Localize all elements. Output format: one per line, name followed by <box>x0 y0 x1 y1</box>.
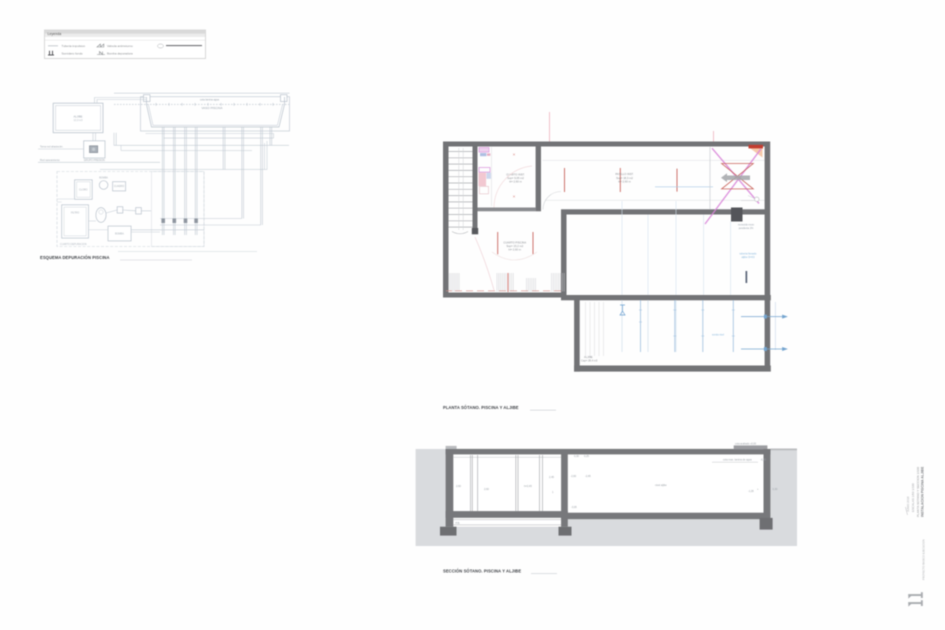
svg-text:FILTRO: FILTRO <box>71 211 79 214</box>
svg-text:0,30: 0,30 <box>773 488 778 491</box>
svg-text:PLANTA SÓTANO. PISCINA Y ALJIB: PLANTA SÓTANO. PISCINA Y ALJIBE <box>443 405 519 410</box>
svg-text:2,60: 2,60 <box>456 485 461 488</box>
svg-text:Tuberia impulsion: Tuberia impulsion <box>62 44 86 48</box>
svg-text:Red saneamiento: Red saneamiento <box>40 159 60 162</box>
svg-text:VASO PISCINA: VASO PISCINA <box>202 106 223 110</box>
svg-text:ESCALAS 1/50 1/100: ESCALAS 1/50 1/100 <box>911 483 915 512</box>
svg-text:ALJIBE: ALJIBE <box>584 355 593 359</box>
svg-text:ESQUEMA DEPURACIÓN PISCINA: ESQUEMA DEPURACIÓN PISCINA <box>40 255 110 260</box>
svg-text:h=2,45: h=2,45 <box>524 485 532 488</box>
svg-text:Sup= 18,3 m2: Sup= 18,3 m2 <box>616 176 633 180</box>
svg-text:H= 2,60 m: H= 2,60 m <box>509 248 522 252</box>
svg-text:SECCIÓN SÓTANO. PISCINA Y ALJI: SECCIÓN SÓTANO. PISCINA Y ALJIBE <box>443 569 521 574</box>
svg-text:2,60: 2,60 <box>484 488 489 491</box>
svg-text:12,0 m3: 12,0 m3 <box>73 119 83 122</box>
svg-text:sonda nivel: sonda nivel <box>712 334 725 337</box>
svg-text:nivel aljibe: nivel aljibe <box>655 484 667 487</box>
svg-text:H= 2,60 m: H= 2,60 m <box>618 179 631 183</box>
svg-text:Cap= 28,4 m3: Cap= 28,4 m3 <box>581 359 598 363</box>
svg-text:GRUPO PRESION: GRUPO PRESION <box>84 159 105 162</box>
svg-text:Sup= 9,05 m2: Sup= 9,05 m2 <box>507 176 524 180</box>
svg-text:-2,45: -2,45 <box>585 475 591 478</box>
svg-text:Bomba depuradora: Bomba depuradora <box>107 52 133 56</box>
svg-text:Valvula antirretorno: Valvula antirretorno <box>107 44 133 48</box>
svg-text:cota lamina agua: cota lamina agua <box>200 99 220 102</box>
svg-text:H= 2,60 m: H= 2,60 m <box>509 180 522 184</box>
svg-text:cota acabado +0,00: cota acabado +0,00 <box>735 443 757 446</box>
svg-text:-3,05: -3,05 <box>571 506 577 509</box>
svg-text:0,30: 0,30 <box>574 455 579 458</box>
svg-text:BOMBA: BOMBA <box>99 176 108 179</box>
svg-text:tuberia llenado: tuberia llenado <box>739 252 757 256</box>
svg-text:Leyenda: Leyenda <box>48 32 62 36</box>
svg-text:INSTALACION PISCINA ALJIBE: INSTALACION PISCINA ALJIBE <box>921 466 925 517</box>
svg-text:cota max. lamina de agua: cota max. lamina de agua <box>723 459 752 462</box>
svg-text:PLANTA SOTANO Y SECCION 1/100: PLANTA SOTANO Y SECCION 1/100 <box>916 467 920 517</box>
svg-text:CUADRO: CUADRO <box>114 185 125 188</box>
svg-text:pendiente 2%: pendiente 2% <box>739 227 754 230</box>
svg-text:-0,15: -0,15 <box>761 459 767 462</box>
svg-text:2,45: 2,45 <box>549 476 554 479</box>
svg-text:-2,60: -2,60 <box>571 475 577 478</box>
svg-text:PASILLO INST.: PASILLO INST. <box>615 172 634 176</box>
svg-text:JUNIO 2018: JUNIO 2018 <box>906 496 910 512</box>
svg-text:CUARTO PISCINA: CUARTO PISCINA <box>503 241 526 245</box>
svg-text:BOMBA: BOMBA <box>115 232 124 235</box>
svg-text:ALJIBE: ALJIBE <box>74 115 83 119</box>
svg-text:Sup= 15,2 m2: Sup= 15,2 m2 <box>506 244 523 248</box>
svg-text:CLORO: CLORO <box>79 189 88 192</box>
svg-text:-1,35: -1,35 <box>748 490 754 493</box>
svg-text:PROYECTO BASICO EJECUCION: PROYECTO BASICO EJECUCION <box>922 539 926 580</box>
svg-text:aljibe D=63: aljibe D=63 <box>741 255 755 259</box>
svg-text:Toma red abastecim.: Toma red abastecim. <box>40 146 64 149</box>
svg-text:Sumidero fondo: Sumidero fondo <box>62 52 84 56</box>
svg-text:0,25: 0,25 <box>584 455 589 458</box>
svg-text:P.B.: P.B. <box>456 521 461 525</box>
svg-text:CUARTO DEPURACION: CUARTO DEPURACION <box>60 243 87 246</box>
